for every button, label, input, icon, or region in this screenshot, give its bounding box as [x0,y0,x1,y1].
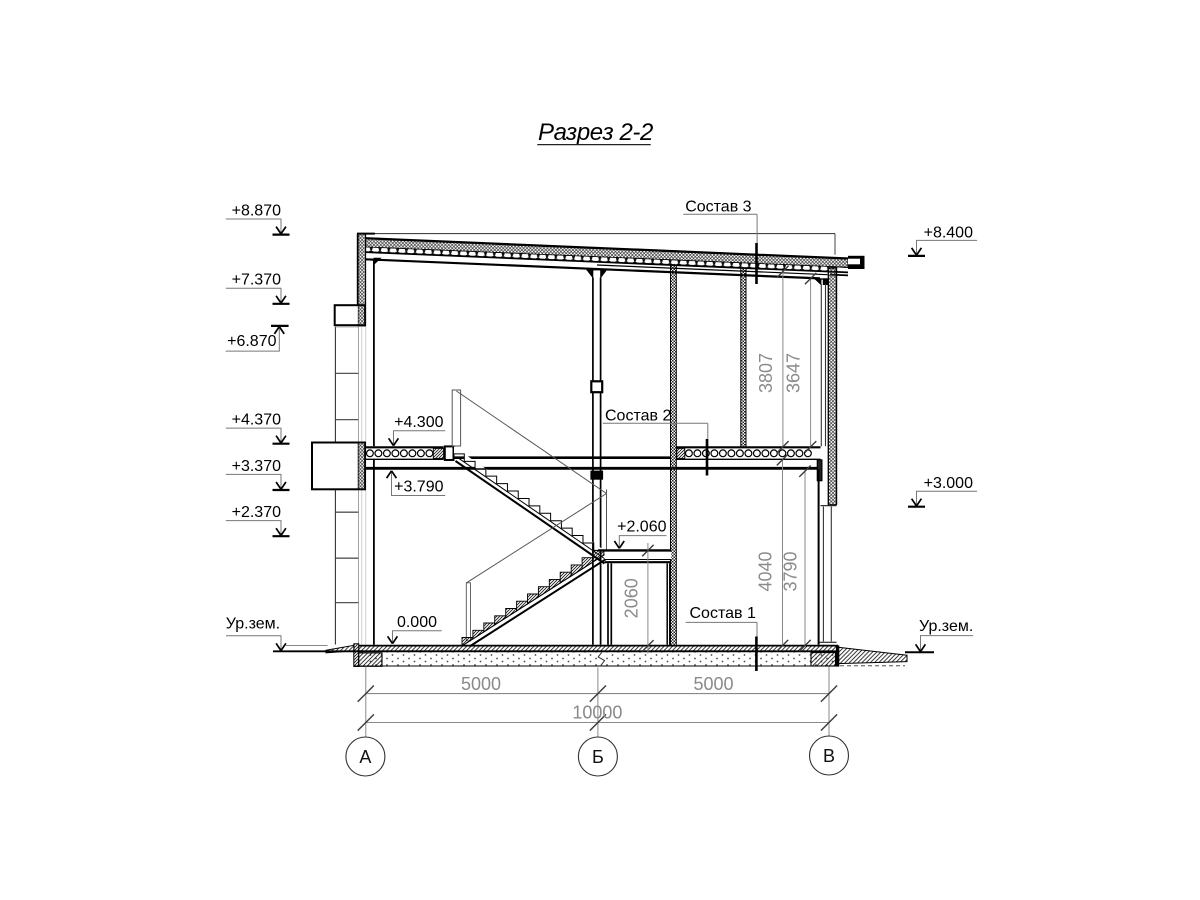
svg-text:3790: 3790 [781,551,801,591]
svg-text:+3.370: +3.370 [232,458,281,475]
svg-text:2060: 2060 [621,578,641,618]
svg-text:3647: 3647 [784,353,804,393]
svg-text:4040: 4040 [755,551,775,591]
svg-text:+8.870: +8.870 [232,203,281,220]
svg-text:0.000: 0.000 [397,614,437,631]
svg-text:В: В [823,746,835,766]
svg-text:+6.870: +6.870 [227,333,276,350]
svg-text:+2.370: +2.370 [232,504,281,521]
svg-text:А: А [359,747,371,767]
svg-text:Б: Б [592,747,604,767]
svg-text:5000: 5000 [693,674,733,694]
svg-text:Ур.зем.: Ур.зем. [919,618,973,635]
svg-text:+8.400: +8.400 [924,224,973,241]
svg-text:+4.370: +4.370 [232,412,281,429]
svg-text:Состав 3: Состав 3 [685,199,751,216]
svg-text:Состав 2: Состав 2 [605,407,671,424]
svg-text:+7.370: +7.370 [232,272,281,289]
svg-text:+2.060: +2.060 [617,519,666,536]
svg-text:+4.300: +4.300 [394,414,443,431]
svg-text:Разрез 2-2: Разрез 2-2 [538,119,653,146]
svg-text:Состав 1: Состав 1 [690,605,756,622]
svg-text:Ур.зем.: Ур.зем. [226,616,280,633]
svg-text:+3.000: +3.000 [924,475,973,492]
svg-text:+3.790: +3.790 [394,479,443,496]
svg-text:10000: 10000 [572,703,622,723]
svg-text:3807: 3807 [756,353,776,393]
svg-text:5000: 5000 [461,674,501,694]
